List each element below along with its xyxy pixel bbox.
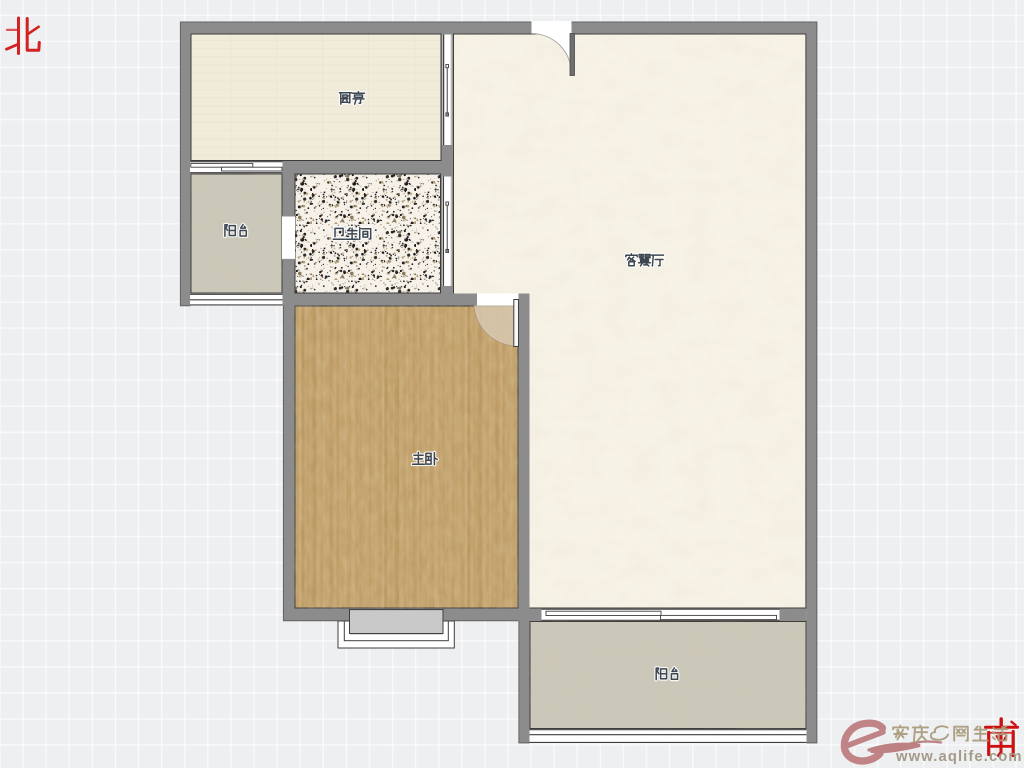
svg-text:www.aqlife.com: www.aqlife.com bbox=[895, 749, 1023, 765]
